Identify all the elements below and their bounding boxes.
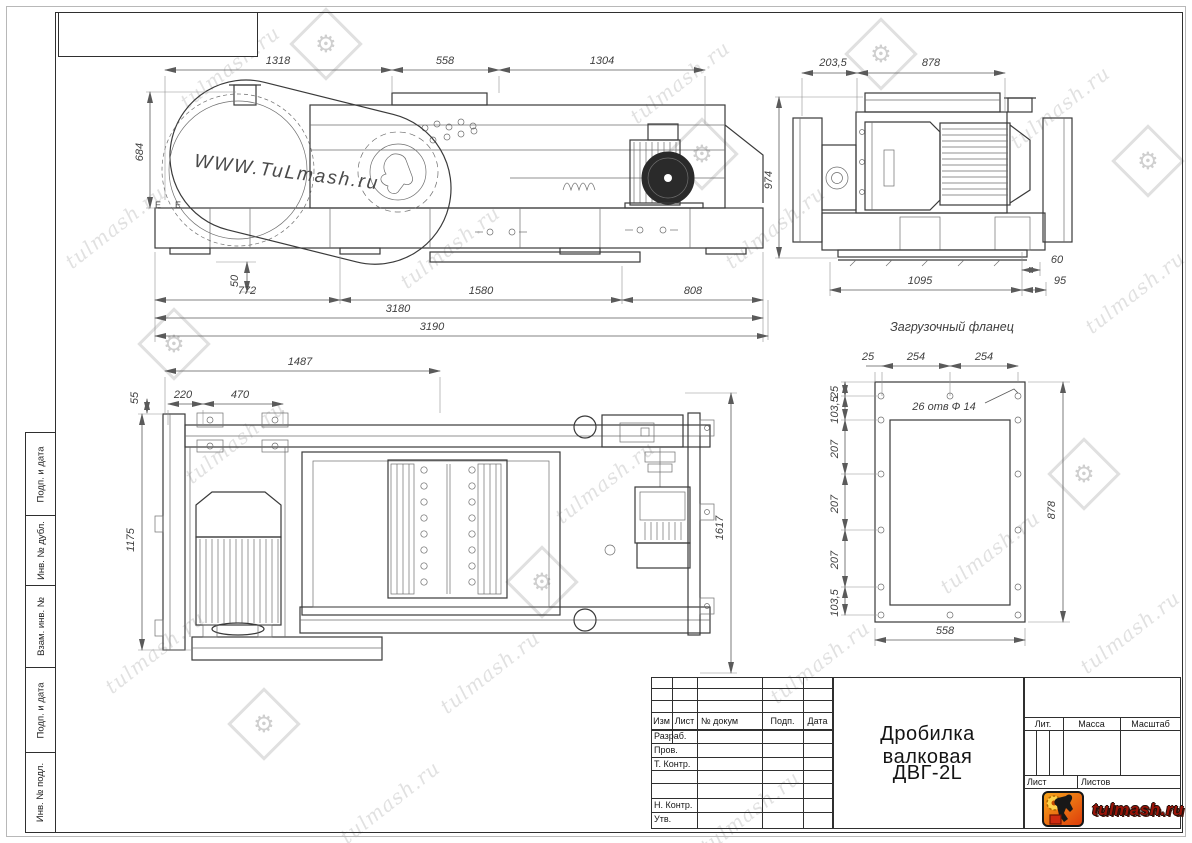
dim-plan-1487: 1487 xyxy=(288,356,313,368)
dim-end-60: 60 xyxy=(1051,254,1064,266)
tb-col-list: Лист xyxy=(672,712,697,729)
dim-flange-103_5: 103,5 xyxy=(829,395,841,423)
dim-side-808: 808 xyxy=(684,285,703,297)
dim-side-684: 684 xyxy=(134,143,146,161)
dim-flange-207: 207 xyxy=(829,494,841,514)
tb-lit: Лит. xyxy=(1023,717,1063,730)
logo-text: tulmash.ru xyxy=(1092,800,1184,820)
tb-role-nkontr: Н. Контр. xyxy=(654,798,697,812)
dim-plan-220: 220 xyxy=(173,389,193,401)
view-side: WWW.TuLmash.ru Е Е 1318 558 1304 684 xyxy=(134,55,768,342)
dim-flange-558: 558 xyxy=(936,625,955,637)
dim-flange-254: 254 xyxy=(974,351,993,363)
tb-doc-title-2: ДВГ-2L xyxy=(835,762,1020,785)
dim-flange-254: 254 xyxy=(906,351,925,363)
dim-flange-878: 878 xyxy=(1046,500,1058,519)
tb-role-prov: Пров. xyxy=(654,743,697,757)
dim-end-1095: 1095 xyxy=(908,275,933,287)
flange-note: 26 отв Ф 14 xyxy=(911,401,975,413)
view-end: 203,5 878 974 1095 60 95 xyxy=(763,57,1072,296)
tb-col-izm: Изм xyxy=(651,712,672,729)
tb-list: Лист xyxy=(1027,775,1077,788)
tb-role-utv: Утв. xyxy=(654,812,697,826)
dim-end-95: 95 xyxy=(1054,275,1067,287)
dim-end-203_5: 203,5 xyxy=(818,57,847,69)
dim-side-1318: 1318 xyxy=(266,55,291,67)
dim-side-558: 558 xyxy=(436,55,455,67)
view-plan: 1487 220 470 55 1175 1617 xyxy=(125,356,737,673)
tb-col-doc: № докум xyxy=(701,712,761,729)
dim-flange-207: 207 xyxy=(829,439,841,459)
dim-plan-1617: 1617 xyxy=(714,515,726,540)
flange-title: Загрузочный фланец xyxy=(890,320,1014,334)
guard-brand-text: WWW.TuLmash.ru xyxy=(193,151,381,195)
dim-plan-55: 55 xyxy=(129,391,141,404)
tulmash-logo xyxy=(1042,791,1084,827)
dim-side-3180: 3180 xyxy=(386,303,411,315)
tb-massa: Масса xyxy=(1063,717,1120,730)
dim-flange-25: 25 xyxy=(861,351,875,363)
dim-flange-103_5: 103,5 xyxy=(829,588,841,616)
dim-flange-207: 207 xyxy=(829,550,841,570)
label-e: Е xyxy=(175,200,181,210)
dim-side-1304: 1304 xyxy=(590,55,614,67)
tb-col-data: Дата xyxy=(803,712,832,729)
tb-listov: Листов xyxy=(1081,775,1141,788)
dim-side-3190: 3190 xyxy=(420,321,445,333)
label-e: Е xyxy=(155,200,161,210)
view-flange: Загрузочный фланец 26 отв Ф 14 25 254 25… xyxy=(829,320,1070,646)
tb-role-tkontr: Т. Контр. xyxy=(654,757,697,770)
tb-col-podp: Подп. xyxy=(762,712,803,729)
tb-masshtab: Масштаб xyxy=(1120,717,1181,730)
dim-plan-1175: 1175 xyxy=(125,527,137,552)
dim-side-772: 772 xyxy=(238,285,256,297)
dim-end-974: 974 xyxy=(763,171,775,189)
dim-plan-470: 470 xyxy=(231,389,250,401)
dim-end-878: 878 xyxy=(922,57,941,69)
drawing-sheet: tulmash.ru tulmash.ru tulmash.ru tulmash… xyxy=(0,0,1192,843)
tb-role-razrab: Разраб. xyxy=(654,729,697,743)
dim-side-1580: 1580 xyxy=(469,285,494,297)
